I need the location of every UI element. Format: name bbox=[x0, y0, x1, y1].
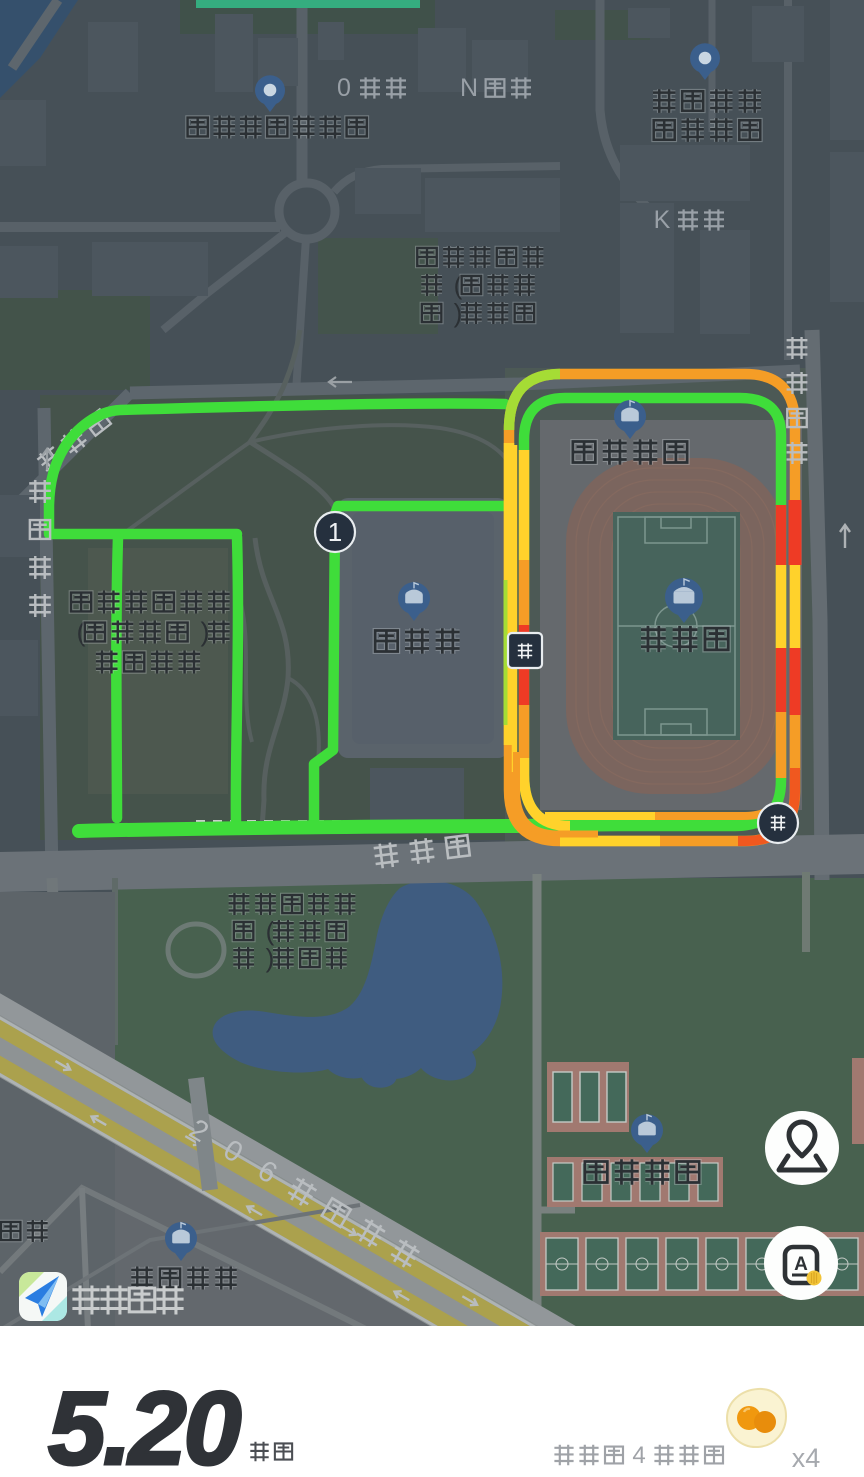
svg-text:4: 4 bbox=[632, 1442, 645, 1469]
svg-text:5.20: 5.20 bbox=[48, 1371, 241, 1477]
svg-text:0: 0 bbox=[337, 74, 351, 102]
svg-text:N: N bbox=[460, 74, 478, 102]
svg-text:x4: x4 bbox=[792, 1443, 821, 1473]
svg-text:K: K bbox=[654, 206, 671, 234]
svg-text:1: 1 bbox=[328, 517, 342, 547]
svg-text:A: A bbox=[794, 1254, 808, 1275]
